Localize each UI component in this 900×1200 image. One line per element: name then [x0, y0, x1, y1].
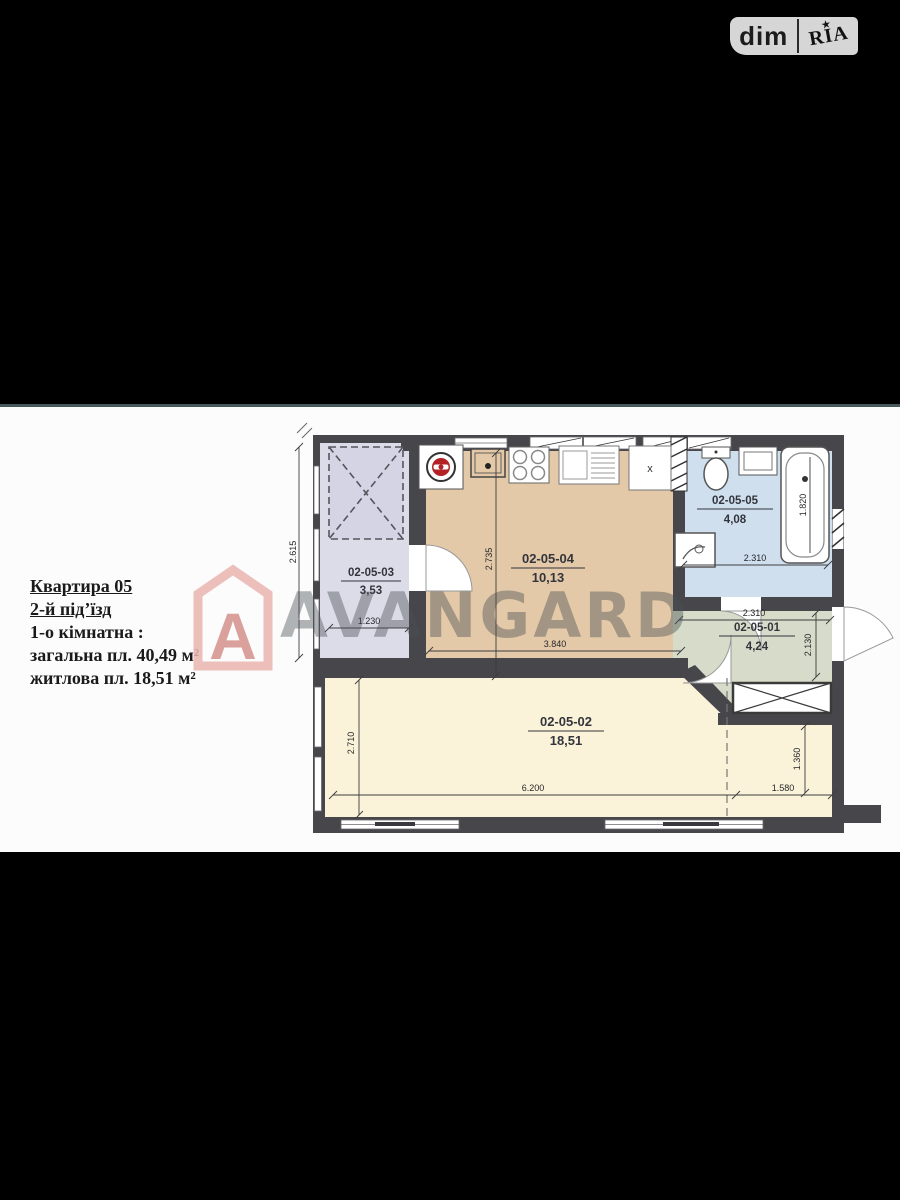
- avangard-watermark-text: AVANGARD: [280, 579, 690, 652]
- rooms-count: 1-о кімнатна :: [30, 621, 199, 644]
- entrance-number: 2-й під’їзд: [30, 598, 199, 621]
- dim-living-height: 2.710: [346, 732, 356, 755]
- svg-text:02-05-05: 02-05-05: [712, 495, 759, 507]
- svg-text:02-05-03: 02-05-03: [348, 567, 394, 579]
- living-area: житлова пл. 18,51 м²: [30, 667, 199, 690]
- dim-hall-width: 2.310: [743, 608, 766, 618]
- dim-bath-width: 2.310: [744, 553, 767, 563]
- dim-niche-width: 1.580: [772, 783, 795, 793]
- svg-text:02-05-01: 02-05-01: [734, 622, 781, 634]
- dim-kitchen-height: 2.735: [484, 548, 494, 571]
- listing-image-area: Квартира 05 2-й під’їзд 1-о кімнатна : з…: [0, 404, 900, 852]
- wardrobe: [733, 683, 831, 713]
- dim-tub-length: 1.820: [798, 494, 808, 517]
- svg-text:02-05-02: 02-05-02: [540, 714, 592, 729]
- bath-sink: [739, 447, 777, 475]
- dim-niche-height: 1.360: [792, 748, 802, 771]
- ria-logo: ★ RIA: [799, 17, 858, 55]
- apartment-info: Квартира 05 2-й під’їзд 1-о кімнатна : з…: [30, 575, 199, 690]
- avangard-logo-letter: A: [209, 599, 257, 673]
- entrance-door-arc: [844, 607, 893, 661]
- dim-balcony-height: 2.615: [288, 541, 298, 564]
- avangard-logo-icon: A: [192, 564, 274, 672]
- svg-text:4,08: 4,08: [724, 514, 747, 526]
- fridge-mark: x: [647, 463, 653, 475]
- svg-text:18,51: 18,51: [550, 733, 583, 748]
- break-marks: [297, 423, 312, 438]
- dim-living-width: 6.200: [522, 783, 545, 793]
- svg-text:02-05-04: 02-05-04: [522, 551, 575, 566]
- dim-hall-height: 2.130: [803, 634, 813, 657]
- dim-logo-text: dim: [739, 21, 788, 52]
- dim-logo: dim: [730, 17, 797, 55]
- total-area: загальна пл. 40,49 м²: [30, 644, 199, 667]
- balcony-hatch-square: [329, 447, 403, 539]
- kitchen-fixtures: x: [419, 445, 671, 490]
- svg-text:4,24: 4,24: [746, 641, 769, 653]
- apartment-number: Квартира 05: [30, 575, 199, 598]
- ria-logo-text: RIA: [807, 21, 850, 51]
- dim-ria-logo: dim ★ RIA: [730, 17, 858, 55]
